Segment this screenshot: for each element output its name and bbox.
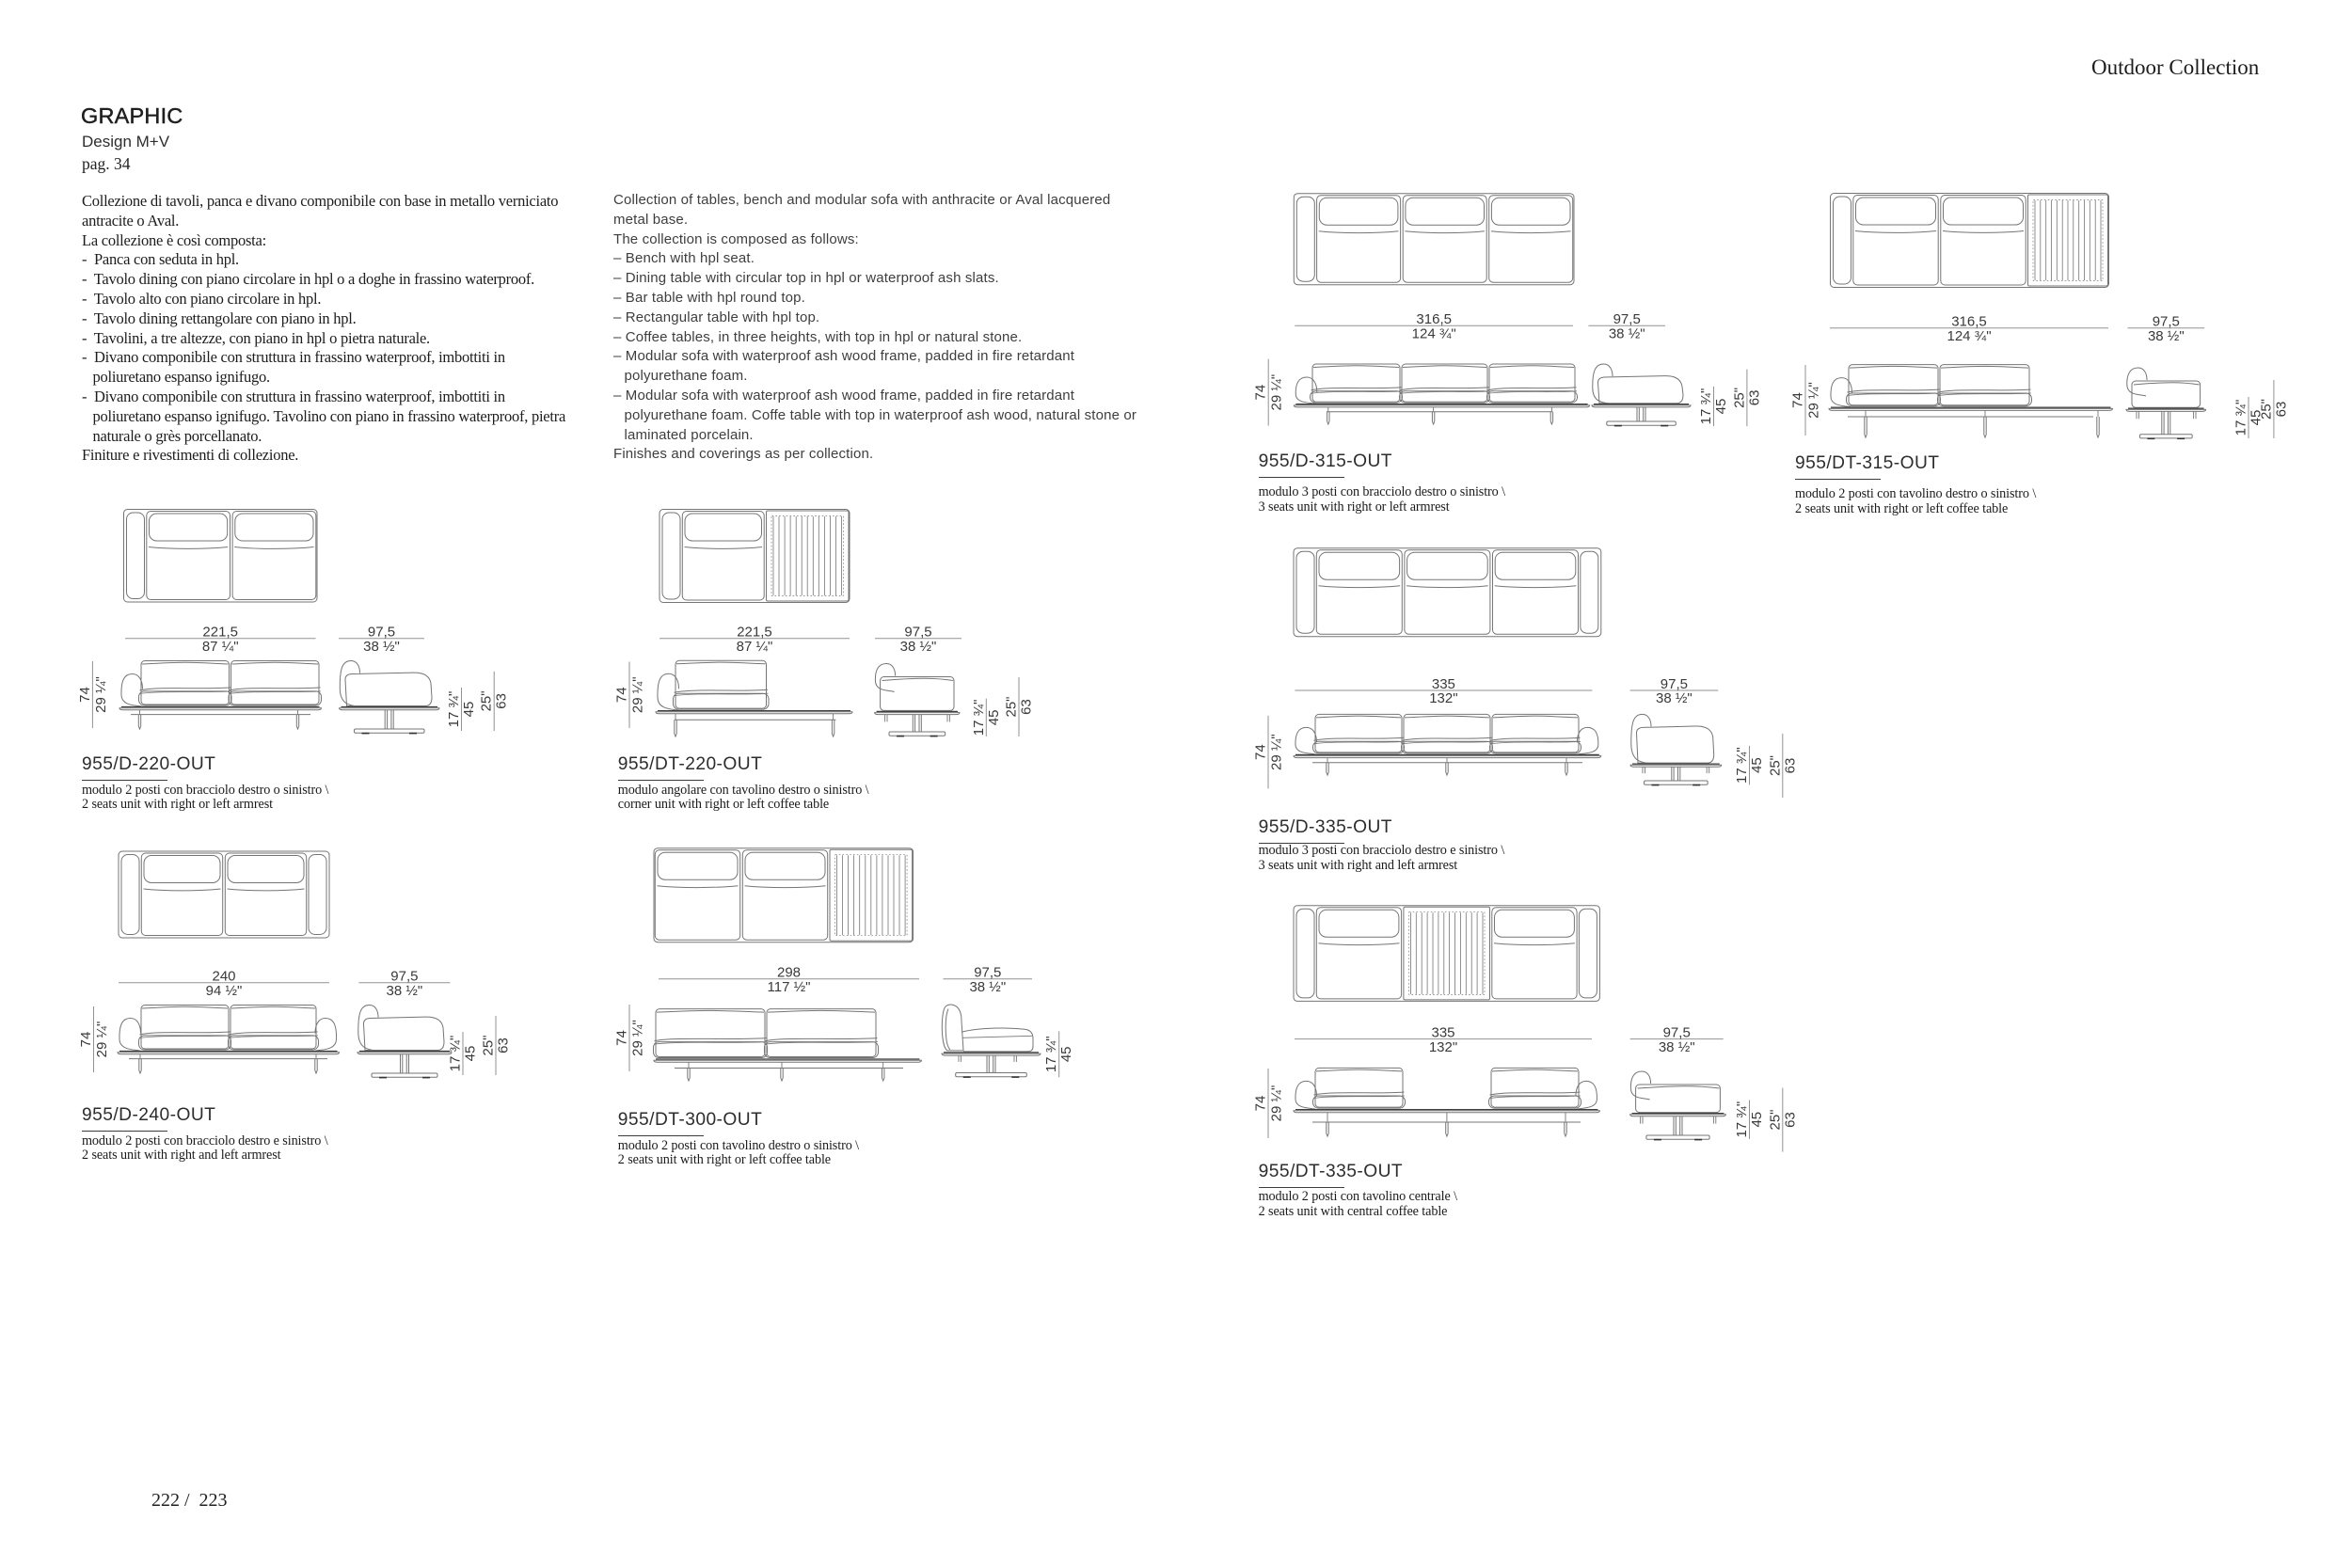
svg-text:38 ½": 38 ½" [387, 983, 423, 999]
svg-text:17 ¾": 17 ¾" [2233, 400, 2249, 436]
svg-text:45: 45 [1749, 1112, 1765, 1128]
svg-text:29 ¼": 29 ¼" [1269, 1085, 1285, 1122]
svg-text:74: 74 [1253, 744, 1269, 760]
svg-text:25": 25" [2258, 399, 2274, 420]
svg-text:45: 45 [986, 710, 1002, 726]
svg-text:29 ¼": 29 ¼" [1806, 382, 1822, 419]
svg-text:63: 63 [2273, 402, 2289, 418]
svg-text:25": 25" [1767, 1109, 1783, 1130]
svg-text:25": 25" [481, 1035, 497, 1055]
svg-text:74: 74 [1253, 385, 1269, 401]
svg-text:38 ½": 38 ½" [2148, 328, 2185, 344]
svg-text:38 ½": 38 ½" [363, 639, 400, 655]
svg-text:74: 74 [1790, 392, 1806, 408]
svg-text:63: 63 [494, 693, 510, 709]
svg-text:87 ¼": 87 ¼" [737, 639, 773, 655]
svg-text:117 ½": 117 ½" [768, 979, 811, 995]
svg-text:45: 45 [1713, 399, 1729, 415]
svg-text:17 ¾": 17 ¾" [448, 1036, 464, 1072]
svg-text:17 ¾": 17 ¾" [1734, 747, 1750, 784]
svg-text:132": 132" [1429, 1039, 1457, 1055]
svg-text:17 ¾": 17 ¾" [1734, 1101, 1750, 1138]
svg-text:45: 45 [463, 1046, 479, 1062]
svg-text:38 ½": 38 ½" [1656, 690, 1692, 706]
svg-text:63: 63 [1019, 699, 1035, 715]
svg-text:38 ½": 38 ½" [900, 639, 937, 655]
svg-text:17 ¾": 17 ¾" [971, 700, 987, 736]
svg-text:74: 74 [614, 1030, 630, 1046]
svg-text:38 ½": 38 ½" [1609, 326, 1645, 342]
svg-text:25": 25" [1731, 388, 1747, 408]
svg-text:25": 25" [479, 690, 495, 711]
svg-text:74: 74 [614, 687, 630, 703]
svg-text:124 ¾": 124 ¾" [1412, 326, 1456, 342]
svg-text:25": 25" [1004, 696, 1020, 717]
svg-text:29 ¼": 29 ¼" [1269, 734, 1285, 770]
svg-text:63: 63 [1746, 390, 1762, 406]
svg-text:17 ¾": 17 ¾" [1698, 388, 1714, 425]
svg-text:74: 74 [78, 1032, 94, 1048]
svg-text:29 ¼": 29 ¼" [630, 1020, 646, 1056]
svg-text:74: 74 [1253, 1096, 1269, 1112]
svg-text:38 ½": 38 ½" [1659, 1039, 1695, 1055]
svg-text:29 ¼": 29 ¼" [630, 676, 646, 713]
svg-text:63: 63 [1782, 758, 1798, 774]
svg-text:17 ¾": 17 ¾" [1043, 1036, 1059, 1072]
svg-text:87 ¼": 87 ¼" [202, 639, 239, 655]
svg-text:63: 63 [496, 1037, 512, 1053]
svg-text:25": 25" [1767, 755, 1783, 776]
svg-text:74: 74 [77, 687, 93, 703]
svg-text:94 ½": 94 ½" [206, 983, 243, 999]
svg-text:29 ¼": 29 ¼" [1269, 374, 1285, 411]
svg-text:45: 45 [1058, 1046, 1074, 1062]
svg-text:29 ¼": 29 ¼" [94, 1022, 110, 1058]
svg-text:38 ½": 38 ½" [969, 979, 1006, 995]
svg-text:17 ¾": 17 ¾" [446, 691, 462, 728]
svg-text:29 ¼": 29 ¼" [93, 676, 109, 713]
svg-text:63: 63 [1782, 1112, 1798, 1128]
svg-text:132": 132" [1429, 690, 1457, 706]
svg-text:45: 45 [461, 702, 477, 718]
svg-text:124 ¾": 124 ¾" [1947, 328, 1991, 344]
svg-text:45: 45 [1749, 757, 1765, 773]
